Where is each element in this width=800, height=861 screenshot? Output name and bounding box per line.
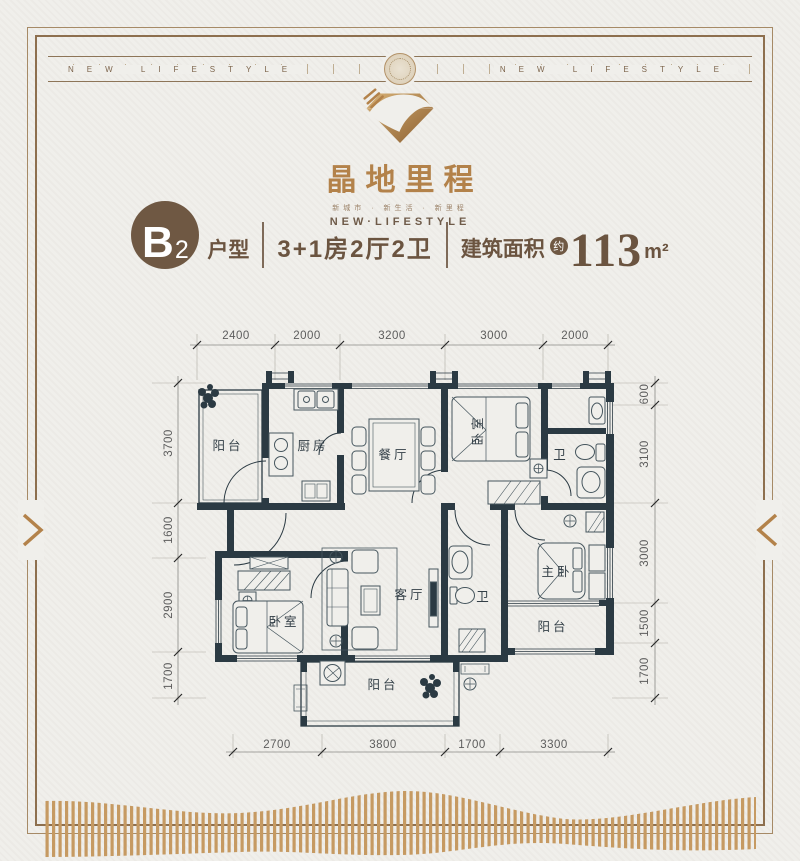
room-label-living: 客厅	[394, 587, 425, 602]
floorplan-poster: { "band": { "text": "NEW LIFESTYLE" }, "…	[0, 0, 800, 861]
dim-top-1: 2400	[222, 330, 250, 342]
bedroom-left-furniture	[233, 557, 303, 653]
master-furniture	[538, 512, 605, 599]
chevron-left-icon	[754, 510, 780, 550]
room-label-bedroom-left: 卧室	[268, 614, 299, 629]
room-label-kitchen: 厨房	[297, 438, 328, 453]
dimension-labels: 2400 2000 3200 3000 2000 2700 3800 1700 …	[163, 330, 651, 751]
bedroom-top-furniture	[452, 397, 547, 504]
dim-top-3: 3200	[378, 330, 406, 342]
room-label-bath-mid: 卫	[476, 590, 492, 604]
room-label-bath-top: 卫	[553, 448, 569, 462]
dim-bottom-4: 3300	[540, 739, 568, 751]
dim-top-5: 2000	[561, 330, 589, 342]
room-label-balcony-top: 阳台	[212, 438, 243, 453]
dim-bottom-2: 3800	[369, 739, 397, 751]
dim-top-4: 3000	[480, 330, 508, 342]
dim-right-1: 600	[639, 384, 651, 405]
room-label-balcony-right: 阳台	[537, 619, 568, 634]
dim-bottom-3: 1700	[458, 739, 486, 751]
bath-top-fixtures	[576, 397, 606, 498]
room-label-bedroom-top: 卧室	[470, 414, 485, 445]
dim-right-2: 3100	[639, 440, 651, 468]
dim-bottom-1: 2700	[263, 739, 291, 751]
plant-icon	[198, 384, 219, 409]
room-label-balcony-bottom: 阳台	[367, 677, 398, 692]
dimension-ticks	[174, 341, 659, 756]
dim-left-1: 3700	[163, 429, 175, 457]
dim-top-2: 2000	[293, 330, 321, 342]
dim-left-4: 1700	[163, 662, 175, 690]
room-label-master: 主卧	[541, 565, 572, 579]
dim-right-5: 1700	[639, 657, 651, 685]
dim-right-3: 3000	[639, 539, 651, 567]
floor-plan: 2400 2000 3200 3000 2000 2700 3800 1700 …	[0, 0, 800, 861]
chevron-right-icon	[20, 510, 46, 550]
wave-shape	[45, 791, 756, 857]
furniture	[233, 389, 605, 711]
wave-decor-band	[0, 761, 800, 861]
dim-left-2: 1600	[163, 516, 175, 544]
dim-right-4: 1500	[639, 609, 651, 637]
plant-icon	[420, 674, 441, 699]
dim-left-3: 2900	[163, 591, 175, 619]
room-label-dining: 餐厅	[378, 447, 409, 462]
